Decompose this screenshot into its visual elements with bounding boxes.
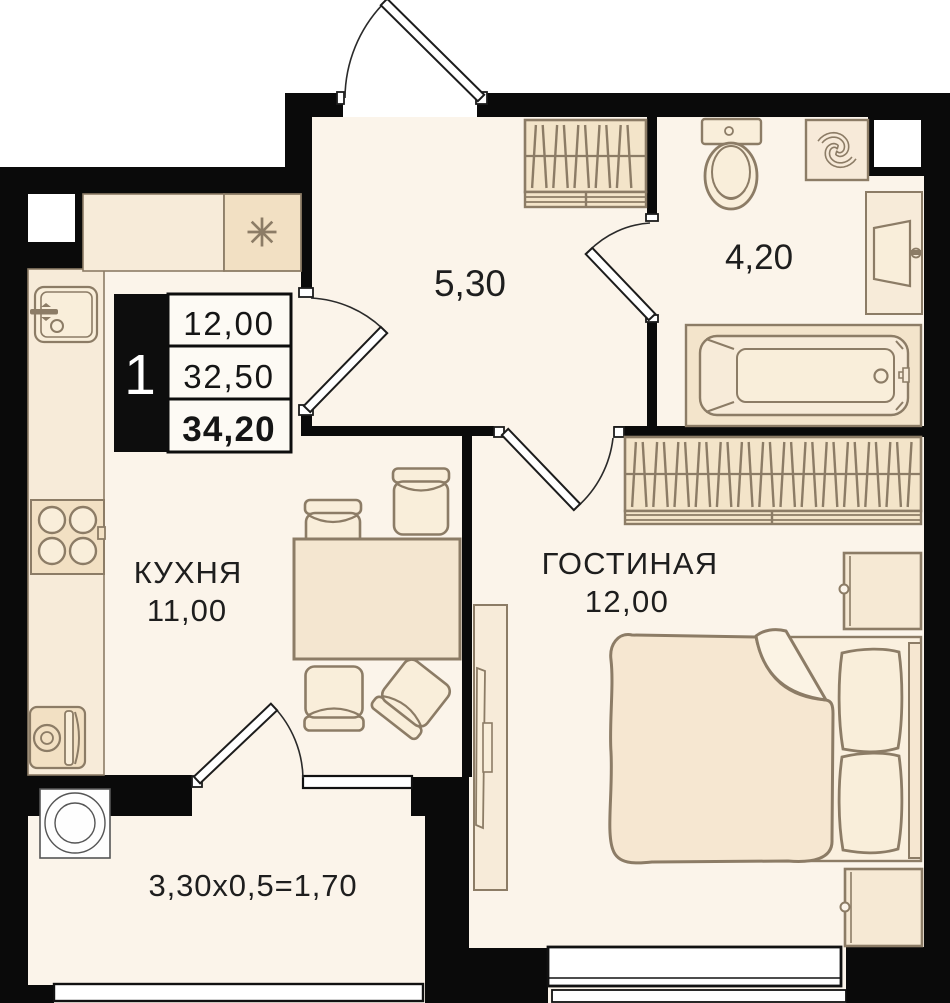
svg-text:4,20: 4,20 [725, 238, 793, 277]
svg-text:КУХНЯ: КУХНЯ [134, 555, 243, 590]
svg-text:5,30: 5,30 [434, 263, 506, 304]
svg-text:ГОСТИНАЯ: ГОСТИНАЯ [542, 546, 719, 581]
svg-text:11,00: 11,00 [147, 593, 227, 628]
svg-text:34,20: 34,20 [182, 410, 276, 449]
svg-text:12,00: 12,00 [183, 305, 275, 342]
svg-text:12,00: 12,00 [585, 584, 670, 619]
svg-text:32,50: 32,50 [183, 358, 275, 395]
svg-text:1: 1 [124, 343, 156, 407]
svg-text:3,30x0,5=1,70: 3,30x0,5=1,70 [148, 868, 357, 903]
